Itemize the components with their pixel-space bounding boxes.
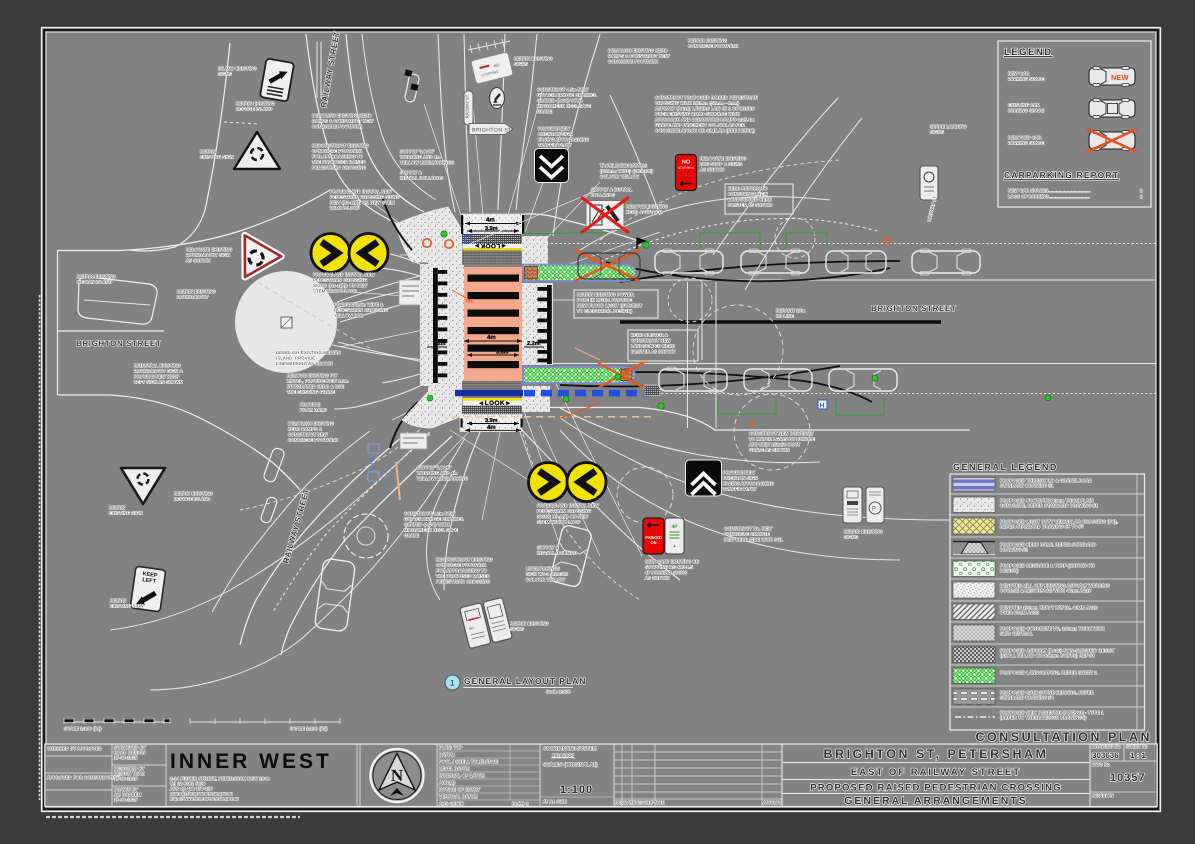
svg-text:APPROVED FOR CONSTRUCTION: APPROVED FOR CONSTRUCTION — [47, 775, 120, 780]
svg-text:SUPPLY "LOOK": SUPPLY "LOOK" — [400, 149, 435, 154]
svg-text:ROUNDABOUT: ROUNDABOUT — [177, 295, 209, 300]
svg-text:4P: 4P — [671, 524, 678, 530]
svg-text:PROVIDE NEW: PROVIDE NEW — [538, 126, 570, 131]
svg-text:NEW KERB SIDE WITH SGL: NEW KERB SIDE WITH SGL — [724, 537, 784, 542]
svg-text:15-08-2025: 15-08-2025 — [114, 776, 138, 781]
svg-text:EXISTING SIGN: EXISTING SIGN — [110, 604, 144, 609]
svg-text:POOL / SHELL TOLERANCE: POOL / SHELL TOLERANCE — [439, 759, 498, 764]
svg-text:LANDSCAPED KERB: LANDSCAPED KERB — [728, 197, 772, 202]
svg-text:PROVIDE NEW KEEP: PROVIDE NEW KEEP — [134, 374, 179, 379]
svg-text:PROVIDE AND INSTALL NEW: PROVIDE AND INSTALL NEW — [537, 503, 599, 508]
svg-text:VERTICAL DATUM: VERTICAL DATUM — [439, 794, 478, 799]
svg-text:4m: 4m — [486, 217, 495, 224]
svg-text:RETAIN EXISTING: RETAIN EXISTING — [177, 289, 216, 294]
svg-text:ISLAND EXISTING: ISLAND EXISTING — [218, 66, 257, 71]
svg-text:GENERAL LAYOUT PLAN: GENERAL LAYOUT PLAN — [464, 676, 586, 686]
svg-text:GENERAL LEGEND: GENERAL LEGEND — [953, 462, 1058, 472]
svg-text:CONSTRUCT PROPOSED RAISED PEDE: CONSTRUCT PROPOSED RAISED PEDESTRIAN — [655, 95, 758, 100]
svg-text:INSTALL BOLLARDS: INSTALL BOLLARDS — [400, 176, 443, 181]
svg-text:RETAIN EXISTING: RETAIN EXISTING — [174, 491, 213, 496]
svg-text:PROVIDE AND INSTALL NEW: PROVIDE AND INSTALL NEW — [330, 189, 392, 194]
svg-text:CONCRETE, REFER STANDARD DRAWI: CONCRETE, REFER STANDARD DRAWING #1 — [1000, 503, 1098, 508]
svg-text:KERB & GUTTER: KERB & GUTTER — [626, 210, 662, 215]
svg-text:PEDESTRIAN CROSSING: PEDESTRIAN CROSSING — [334, 308, 388, 313]
svg-text:SUPPLY &: SUPPLY & — [537, 545, 559, 550]
svg-text:TACTILE INDICATORS: TACTILE INDICATORS — [600, 163, 647, 168]
svg-text:CONSTRUCT 4.2m NEW: CONSTRUCT 4.2m NEW — [404, 511, 455, 516]
svg-text:PEDESTRIAN CROSSING: PEDESTRIAN CROSSING — [436, 579, 490, 584]
svg-text:LEGEND: LEGEND — [1004, 47, 1053, 58]
svg-text:LEVEL DATUM: LEVEL DATUM — [439, 766, 470, 771]
svg-text:WORDING AND 4m: WORDING AND 4m — [417, 471, 458, 476]
svg-text:RAILWAY ST: RAILWAY ST — [465, 94, 470, 118]
svg-text:STANDARD DRAWING #1: STANDARD DRAWING #1 — [1000, 483, 1054, 488]
svg-text:PEDESTRIAN CROSSING: PEDESTRIAN CROSSING — [313, 278, 367, 283]
svg-text:KERB RAMPS &: KERB RAMPS & — [288, 427, 322, 432]
svg-text:RELOCATE EXISTING: RELOCATE EXISTING — [186, 247, 232, 252]
svg-text:SIGNS: SIGNS — [218, 72, 232, 77]
svg-text:GRATE: GRATE — [404, 533, 419, 538]
svg-text:EXISTING SIGN: EXISTING SIGN — [200, 155, 234, 160]
svg-text:BRIGHTON ST: BRIGHTON ST — [472, 128, 512, 134]
svg-text:NEW (R3-1(A)) ON NEW STEM: NEW (R3-1(A)) ON NEW STEM — [330, 200, 395, 205]
svg-text:LINEMARKINGS: LINEMARKINGS — [526, 566, 560, 571]
svg-text:BRIGHTON ST, PETERSHAM: BRIGHTON ST, PETERSHAM — [824, 747, 1049, 761]
svg-text:APPROACH AND DEPARTURE RAMPS 1: APPROACH AND DEPARTURE RAMPS 1:15.4m — [655, 117, 755, 122]
svg-text:LANDSCAPED KERB: LANDSCAPED KERB — [631, 344, 675, 349]
svg-text:AHD(M): AHD(M) — [439, 780, 456, 785]
svg-text:RETAIN EXISTING POWER: RETAIN EXISTING POWER — [577, 292, 634, 297]
svg-text:ISLAND. PROVIDE: ISLAND. PROVIDE — [276, 356, 315, 361]
svg-text:CONSTRUCT 4.5m NEW: CONSTRUCT 4.5m NEW — [537, 87, 588, 92]
svg-text:THE EXISTING GRATE: THE EXISTING GRATE — [287, 390, 335, 395]
svg-text:P: P — [872, 506, 876, 513]
svg-text:4m: 4m — [487, 424, 496, 431]
svg-text:PROPOSED LANDSCAPING, REFER SH: PROPOSED LANDSCAPING, REFER SHEET 2 — [1000, 670, 1097, 675]
svg-text:15-08-2025: 15-08-2025 — [114, 797, 138, 802]
svg-text:INTERVAL OF DATUM: INTERVAL OF DATUM — [439, 773, 485, 778]
svg-text:D I G: D I G — [370, 457, 376, 470]
svg-text:SIGNS: SIGNS — [930, 130, 944, 135]
svg-text:RETAIN EXISTING: RETAIN EXISTING — [236, 101, 275, 106]
svg-text:TRAFFIC FLOW: TRAFFIC FLOW — [723, 487, 756, 492]
svg-text:MICROMESH HEEL SAFE: MICROMESH HEEL SAFE — [537, 104, 591, 109]
svg-text:RETAIN EXISTING: RETAIN EXISTING — [514, 56, 553, 61]
svg-text:1:100: 1:100 — [560, 784, 593, 796]
svg-text:ON: ON — [651, 540, 657, 545]
svg-text:PROVIDE AND INSTALL NEW: PROVIDE AND INSTALL NEW — [313, 272, 375, 277]
svg-text:BRIGHTON STREET: BRIGHTON STREET — [76, 339, 161, 348]
svg-text:10357: 10357 — [1110, 772, 1146, 784]
svg-text:SUPPLY &: SUPPLY & — [400, 170, 422, 175]
svg-text:EXISTING SIGN: EXISTING SIGN — [109, 511, 143, 516]
svg-text:COURSE & RESURFACE WITH 40mm A: COURSE & RESURFACE WITH 40mm AC10 — [1000, 588, 1092, 593]
svg-text:REMOVED CAR: REMOVED CAR — [1008, 135, 1041, 140]
svg-text:REMOVE EXISTING: REMOVE EXISTING — [626, 204, 668, 209]
svg-text:RELOCATE EXISTING BE: RELOCATE EXISTING BE — [645, 559, 699, 564]
svg-text:FOR APPROACHING TO: FOR APPROACHING TO — [436, 568, 488, 573]
svg-text:LINEMARKING AS SHOWN: LINEMARKING AS SHOWN — [276, 361, 333, 366]
svg-text:1 : 1: 1 : 1 — [1130, 751, 1147, 760]
svg-text:GUTTER BRIDGE CHANNEL: GUTTER BRIDGE CHANNEL — [404, 517, 464, 522]
svg-text:303636: 303636 — [1092, 751, 1119, 760]
svg-text:3.9m: 3.9m — [485, 418, 498, 424]
svg-text:BUS STOP & SIGNS: BUS STOP & SIGNS — [700, 162, 742, 167]
svg-text:(SHALL BE LAID ON 300mm JOINTS: (SHALL BE LAID ON 300mm JOINTS) REF #3 — [1000, 653, 1095, 658]
svg-text:TO MATCH LGA15 DU BUNDLE: TO MATCH LGA15 DU BUNDLE — [749, 437, 815, 442]
svg-text:COLOUR YELLOW: COLOUR YELLOW — [600, 174, 639, 179]
svg-text:ROUNDABOUT SIGN &: ROUNDABOUT SIGN & — [134, 369, 182, 374]
svg-text:POLE IN LIGHT. PROVIDE: POLE IN LIGHT. PROVIDE — [577, 298, 632, 303]
svg-text:STOPPING RS-400-1.5: STOPPING RS-400-1.5 — [645, 565, 693, 570]
svg-text:REFUGE ISLAND: REFUGE ISLAND — [236, 107, 272, 112]
svg-text:(REFER TO THESE DESIGN DRAWING: (REFER TO THESE DESIGN DRAWINGS) — [1000, 715, 1087, 720]
svg-text:RETAIN: RETAIN — [110, 598, 126, 603]
svg-text:CONCRETE FOOTPATH: CONCRETE FOOTPATH — [608, 59, 658, 64]
svg-text:4P PARKING SIGNS: 4P PARKING SIGNS — [645, 570, 687, 575]
svg-text:RETAIN: RETAIN — [109, 505, 125, 510]
svg-text:APPROV: APPROV — [763, 800, 782, 805]
svg-text:YELLOW LINEMARKINGS: YELLOW LINEMARKINGS — [400, 160, 454, 165]
svg-text:RETAIN EXISTING: RETAIN EXISTING — [510, 621, 549, 626]
svg-text:GUTTER BRIDGE CHANNEL: GUTTER BRIDGE CHANNEL — [537, 93, 597, 98]
svg-text:SPARE LOADING: SPARE LOADING — [930, 124, 967, 129]
svg-text:PLAN: TOP: PLAN: TOP — [439, 745, 463, 750]
svg-text:PROPOSED RAISED PEDESTRIAN: PROPOSED RAISED PEDESTRIAN CROSSING — [810, 783, 1062, 794]
svg-text:GRATED (ACO) WITH: GRATED (ACO) WITH — [537, 98, 582, 103]
svg-text:PRAM RAMP: PRAM RAMP — [300, 408, 327, 413]
svg-text:GRATED (ACO) WITH: GRATED (ACO) WITH — [404, 522, 449, 527]
svg-text:COLOUR YELLOW: COLOUR YELLOW — [526, 577, 565, 582]
svg-text:RAMPS & CONSTRUCT NEW: RAMPS & CONSTRUCT NEW — [312, 119, 373, 124]
svg-text:NO: NO — [682, 160, 691, 166]
svg-text:INSTALL BOLLARD: INSTALL BOLLARD — [537, 551, 577, 556]
svg-text:CONSTRUCT NEW: CONSTRUCT NEW — [728, 192, 768, 197]
svg-text:REFUGE ISLAND: REFUGE ISLAND — [174, 497, 210, 502]
svg-text:AUS GEOID: AUS GEOID — [439, 801, 464, 806]
svg-text:LOSS OF PARKING...............: LOSS OF PARKING.........................… — [1008, 194, 1090, 199]
svg-text:YELLOW BAR: YELLOW BAR — [334, 313, 363, 318]
svg-text:SIGN W6-3 300x300: SIGN W6-3 300x300 — [526, 572, 569, 577]
svg-text:DEMOLISH EXISTING: DEMOLISH EXISTING — [288, 421, 334, 426]
svg-text:PARKING SPACE: PARKING SPACE — [1008, 108, 1044, 113]
svg-text:FACING APPROACHING: FACING APPROACHING — [723, 481, 774, 486]
svg-text:DEMOLISH EXISTING MEDIAN: DEMOLISH EXISTING MEDIAN — [276, 350, 341, 355]
svg-text:SCALE 1:100 (A1): SCALE 1:100 (A1) — [64, 726, 102, 731]
svg-text:SCALES (ORIGINAL A1): SCALES (ORIGINAL A1) — [543, 762, 598, 767]
svg-text:(600mm WIDE) (300x300): (600mm WIDE) (300x300) — [600, 169, 654, 174]
svg-text:CONCRETE CHANGE: CONCRETE CHANGE — [724, 532, 770, 537]
svg-text:DEMOLISH EXISTING KERB: DEMOLISH EXISTING KERB — [608, 48, 668, 53]
svg-text:CONSTRUCT NEW: CONSTRUCT NEW — [288, 432, 328, 437]
svg-text:CONSTRUCT No. NEW: CONSTRUCT No. NEW — [724, 526, 772, 531]
svg-text:3.6m: 3.6m — [496, 350, 509, 356]
svg-text:THE PROPOSED RAISED: THE PROPOSED RAISED — [312, 160, 366, 165]
svg-text:FOR APPROACHING TO: FOR APPROACHING TO — [312, 154, 364, 159]
svg-text:LEFT SIGN AS SHOWN: LEFT SIGN AS SHOWN — [134, 380, 183, 385]
svg-text:PARKING SPACE: PARKING SPACE — [1008, 77, 1044, 82]
svg-text:PROVIDE: PROVIDE — [300, 402, 320, 407]
svg-text:THE PROPOSED RAISED: THE PROPOSED RAISED — [436, 574, 490, 579]
svg-text:PROVIDE 0.6m WIDE &: PROVIDE 0.6m WIDE & — [334, 302, 383, 307]
svg-text:AS SHOWN: AS SHOWN — [700, 167, 724, 172]
svg-text:KERB RETURN TO: KERB RETURN TO — [728, 186, 768, 191]
svg-text:CONCRETE FOOTPATH: CONCRETE FOOTPATH — [312, 124, 362, 129]
svg-text:KERB BLISTER &: KERB BLISTER & — [631, 333, 668, 338]
svg-text:STOPPING: STOPPING — [678, 166, 695, 170]
svg-text:MGA2020: MGA2020 — [552, 753, 574, 758]
svg-text:AS SHOWN: AS SHOWN — [186, 258, 210, 263]
svg-text:NEW CAR: NEW CAR — [1008, 71, 1029, 76]
svg-text:INNER WEST: INNER WEST — [170, 750, 332, 773]
svg-text:▲: ▲ — [673, 543, 677, 548]
svg-text:NEW CAR SPACES................: NEW CAR SPACES..........................… — [1008, 188, 1091, 193]
svg-text:GRATE AS SHOWN: GRATE AS SHOWN — [749, 448, 790, 453]
svg-text:CONSTRUCT NEW: CONSTRUCT NEW — [631, 338, 671, 343]
svg-text:REPAINT 27m: REPAINT 27m — [776, 308, 806, 313]
svg-text:WITH U-LOOP: WITH U-LOOP — [330, 206, 360, 211]
svg-text:STEM WITH U-LOOP: STEM WITH U-LOOP — [313, 289, 357, 294]
svg-text:REINSTALL EXISTING: REINSTALL EXISTING — [134, 363, 181, 368]
svg-text:NEW: NEW — [1111, 73, 1129, 82]
svg-text:https://www.innerwest.nsw.gov.: https://www.innerwest.nsw.gov.au — [170, 796, 239, 801]
svg-text:SUPPLY "LOOK": SUPPLY "LOOK" — [417, 465, 452, 470]
svg-text:DRAWING No: DRAWING No — [1092, 744, 1121, 749]
svg-text:CHEVRON SIGN: CHEVRON SIGN — [723, 476, 758, 481]
svg-text:PROVIDE NEW: PROVIDE NEW — [723, 470, 755, 475]
svg-text:REVISION: REVISION — [1092, 793, 1114, 798]
svg-text:CONCRETE FOOTPATH: CONCRETE FOOTPATH — [288, 438, 338, 443]
svg-text:REPAIR EXISTING: REPAIR EXISTING — [688, 38, 727, 43]
svg-text:RB LINE: RB LINE — [776, 314, 794, 319]
svg-text:CONCRETE FOOTPATH: CONCRETE FOOTPATH — [436, 563, 486, 568]
svg-text:INTEGRATED KERB & USE: INTEGRATED KERB & USE — [287, 384, 344, 389]
svg-text:NOTICE OF ENTRY: NOTICE OF ENTRY — [439, 787, 480, 792]
svg-text:RETAIN EXISTING: RETAIN EXISTING — [844, 529, 883, 534]
svg-text:SHEET No: SHEET No — [1126, 744, 1148, 749]
svg-text:AND NEW 150x50 DUCT: AND NEW 150x50 DUCT — [749, 442, 801, 447]
svg-text:CROSSING WITH 100mm (50mm - 0m: CROSSING WITH 100mm (50mm - 0mm) — [655, 101, 740, 106]
svg-text:DWG No: DWG No — [1092, 762, 1110, 767]
svg-text:CONSTRUCT NEW DRIVEWAY: CONSTRUCT NEW DRIVEWAY — [749, 431, 814, 436]
svg-text:CHECKED BY APPROVED: CHECKED BY APPROVED — [47, 746, 102, 751]
svg-text:RETAIN: RETAIN — [200, 149, 216, 154]
svg-text:FACING APPROACHING: FACING APPROACHING — [538, 137, 589, 142]
svg-text:RECONSTRUCT EXISTING: RECONSTRUCT EXISTING — [312, 143, 369, 148]
svg-text:AT A1 SIZE: AT A1 SIZE — [543, 799, 567, 804]
svg-text:RELOCATE EXISTING: RELOCATE EXISTING — [700, 156, 746, 161]
svg-text:H: H — [820, 403, 825, 410]
svg-text:SIGNS: SIGNS — [510, 627, 524, 632]
svg-text:SIGNS: SIGNS — [514, 62, 528, 67]
svg-text:GENERAL ARRANGEMENTS: GENERAL ARRANGEMENTS — [844, 795, 1028, 807]
svg-text:ASPHALT (AC10) LAYERS LAID IN: ASPHALT (AC10) LAYERS LAID IN 2 COURSES — [655, 106, 755, 111]
svg-text:DATUM: DATUM — [439, 752, 455, 757]
svg-text:DEMOLISH EXISTING KERB: DEMOLISH EXISTING KERB — [312, 113, 372, 118]
svg-text:LINTEL, PROVIDE NEW 1.8m: LINTEL, PROVIDE NEW 1.8m — [287, 379, 349, 384]
svg-text:4m: 4m — [487, 334, 496, 341]
svg-text:GRADE AND PAVEMENT COLOUR AS P: GRADE AND PAVEMENT COLOUR AS PER — [655, 123, 745, 128]
svg-text:SIGNS (R3-1(A)) ON NEW: SIGNS (R3-1(A)) ON NEW — [313, 283, 367, 288]
svg-text:3.9m: 3.9m — [485, 226, 498, 232]
svg-text:OVER EXISTING ROAD SURFACE WIT: OVER EXISTING ROAD SURFACE WITH — [655, 112, 740, 117]
svg-text:STANDARD DRAWING #4: STANDARD DRAWING #4 — [1000, 695, 1054, 700]
svg-text:DESCRIPTION: DESCRIPTION — [634, 800, 665, 805]
svg-text:RETAIN EXISTING: RETAIN EXISTING — [77, 274, 116, 279]
svg-text:CONCRETE FOOTPATH: CONCRETE FOOTPATH — [312, 149, 362, 154]
svg-text:RL(M) 2: RL(M) 2 — [512, 801, 529, 806]
svg-text:1: 1 — [450, 679, 455, 688]
svg-text:PEDESTRIAN CROSSING: PEDESTRIAN CROSSING — [537, 509, 591, 514]
svg-text:TRAFFIC FLOW: TRAFFIC FLOW — [538, 143, 571, 148]
svg-text:N: N — [391, 766, 404, 785]
svg-text:SIGNS: SIGNS — [844, 535, 858, 540]
svg-text:TO ELECTRICAL DESIGN): TO ELECTRICAL DESIGN) — [577, 309, 633, 314]
svg-text:SCALE 1:200 (A3): SCALE 1:200 (A3) — [290, 726, 328, 731]
svg-text:BLISTER AS SHOWN: BLISTER AS SHOWN — [728, 203, 772, 208]
svg-text:YELLOW LINEMARKING: YELLOW LINEMARKING — [417, 476, 468, 481]
svg-text:ROUNDABOUT SIGN: ROUNDABOUT SIGN — [186, 253, 230, 258]
svg-text:RAMPS & CONSTRUCT NEW: RAMPS & CONSTRUCT NEW — [608, 54, 669, 59]
svg-text:DRAWING #2: DRAWING #2 — [1000, 547, 1028, 552]
svg-text:PEDESTRIAN CROSSING: PEDESTRIAN CROSSING — [312, 165, 366, 170]
svg-text:SL72 CENTRAL: SL72 CENTRAL — [1000, 631, 1033, 636]
svg-text:MICROMESH HEEL SAFE: MICROMESH HEEL SAFE — [404, 528, 458, 533]
svg-text:Scale 1:100: Scale 1:100 — [546, 689, 571, 694]
svg-text:REV: REV — [615, 800, 624, 805]
svg-text:BOLLARDS: BOLLARDS — [591, 193, 615, 198]
svg-text:AS SHOWN: AS SHOWN — [645, 576, 669, 581]
svg-text:PEDESTRIAN CROSSING SIGNS: PEDESTRIAN CROSSING SIGNS — [330, 195, 399, 200]
svg-text:BLISTER AS SHOWN: BLISTER AS SHOWN — [631, 349, 675, 354]
svg-text:WORDING AND 4m: WORDING AND 4m — [400, 155, 441, 160]
svg-text:CONCRETE FOOTPATH: CONCRETE FOOTPATH — [688, 44, 738, 49]
svg-text:RF: RF — [466, 298, 474, 305]
svg-text:REMOVE EXISTING PIT: REMOVE EXISTING PIT — [287, 373, 338, 378]
svg-text:EXISTING CAR: EXISTING CAR — [1008, 103, 1040, 108]
svg-text:SUPPLY & INSTALL: SUPPLY & INSTALL — [591, 187, 633, 192]
svg-text:EAST OF RAILWAY STREET: EAST OF RAILWAY STREET — [851, 767, 1021, 778]
svg-text:GRATE: GRATE — [537, 109, 552, 114]
svg-text:CONCRETE APRON OR SIMILAR (SEE: CONCRETE APRON OR SIMILAR (SEE DETAIL) — [655, 128, 756, 133]
svg-text:15-08-2025: 15-08-2025 — [114, 755, 138, 760]
svg-text:SIGNS R3-1(A) ON NEW: SIGNS R3-1(A) ON NEW — [537, 514, 588, 519]
svg-text:REFER STANDARD DRAWING #5 TO #: REFER STANDARD DRAWING #5 TO #7 — [1000, 524, 1084, 529]
svg-text:DESIGN): DESIGN) — [1000, 568, 1019, 573]
svg-text:RECONSTRUCT EXISTING: RECONSTRUCT EXISTING — [436, 557, 493, 562]
svg-text:OVER 60MM AC20: OVER 60MM AC20 — [1000, 610, 1039, 615]
svg-text:CARPARKING REPORT: CARPARKING REPORT — [1004, 170, 1119, 180]
svg-text:NEW FLOOD LIGHT (SUBJECT: NEW FLOOD LIGHT (SUBJECT — [577, 303, 642, 308]
svg-text:CONSULTATION PLAN: CONSULTATION PLAN — [975, 730, 1152, 744]
svg-text:MEDIAN ISLAND: MEDIAN ISLAND — [77, 280, 112, 285]
svg-text:COORDINATE SYSTEM: COORDINATE SYSTEM — [543, 746, 597, 751]
svg-text:STEM WITH U-LOOP: STEM WITH U-LOOP — [537, 520, 581, 525]
svg-text:PARKING SPACE: PARKING SPACE — [1008, 141, 1044, 146]
svg-text:BRIGHTON STREET: BRIGHTON STREET — [871, 304, 956, 313]
svg-text:CHEVRON SIGN: CHEVRON SIGN — [538, 132, 573, 137]
svg-text:◄LOOK►: ◄LOOK► — [473, 242, 507, 249]
